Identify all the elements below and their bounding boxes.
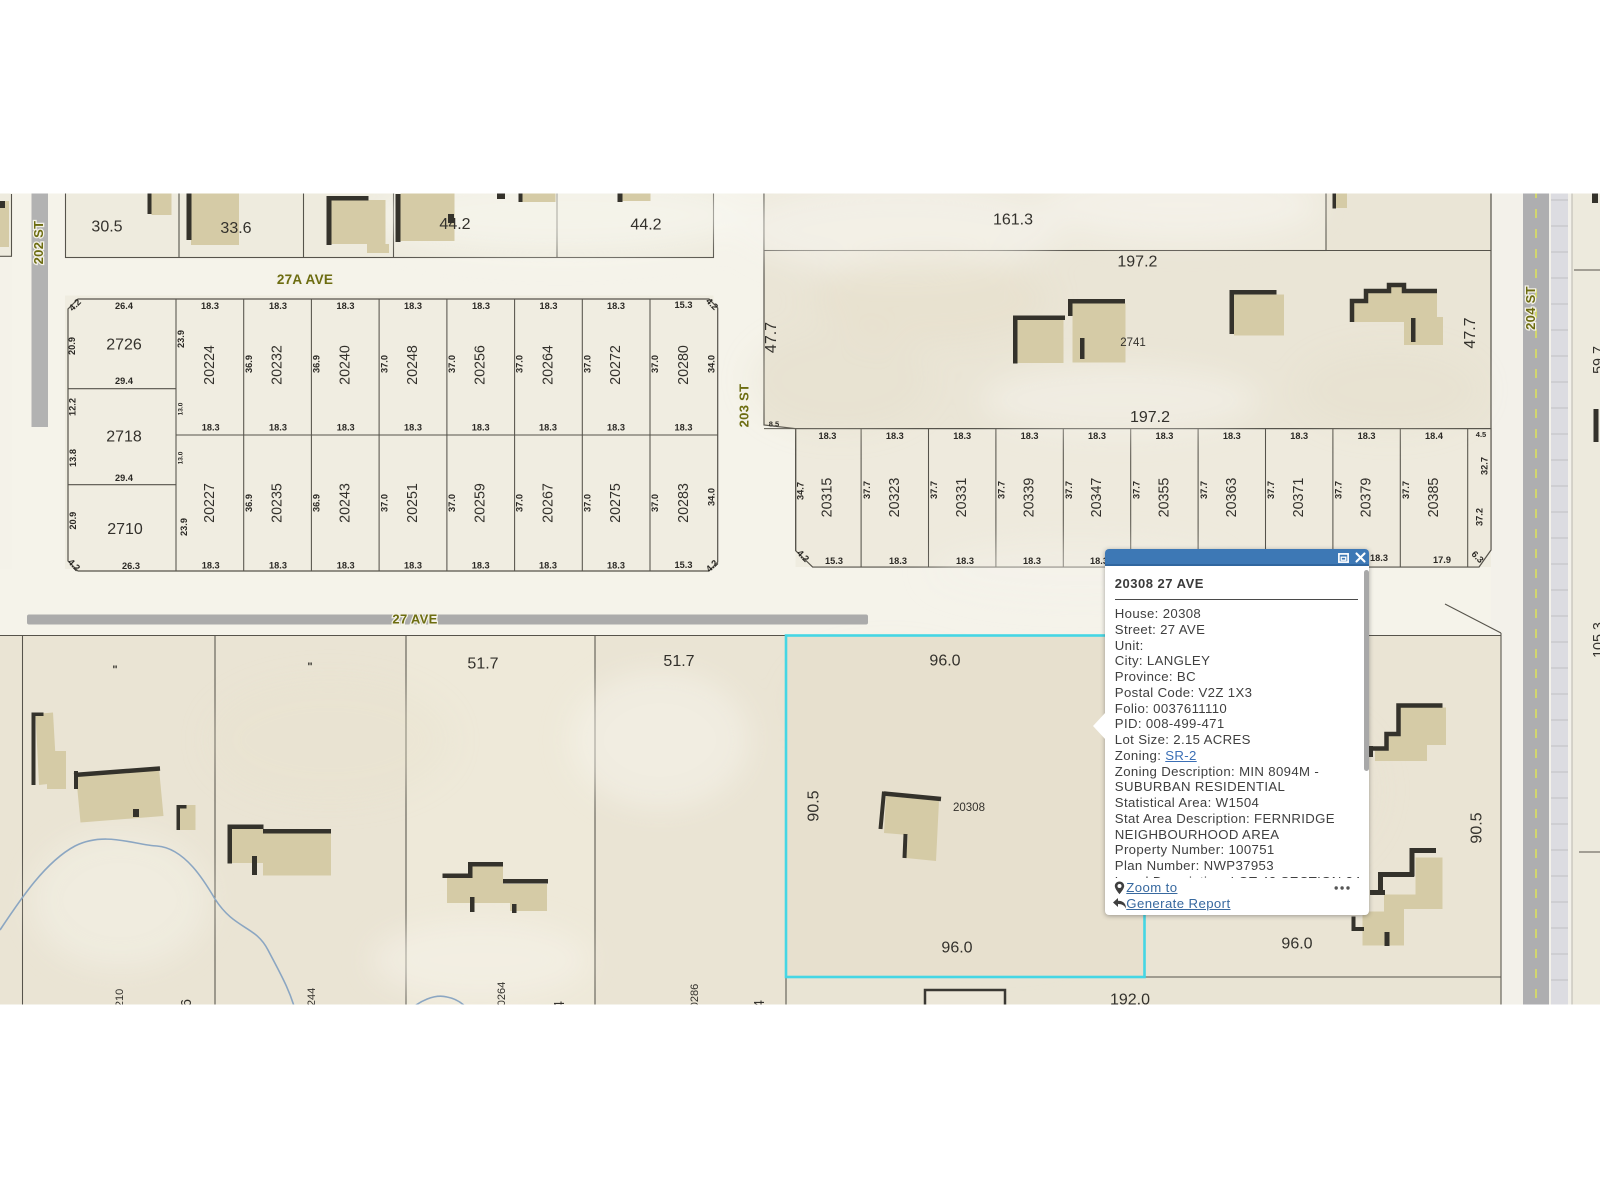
svg-text:20256: 20256 (473, 345, 489, 385)
svg-text:6: 6 (179, 999, 195, 1007)
svg-text:15.3: 15.3 (825, 556, 843, 566)
svg-text:36.9: 36.9 (312, 494, 322, 512)
svg-text:20267: 20267 (540, 483, 556, 523)
svg-text:23.9: 23.9 (176, 330, 186, 348)
svg-text:204 ST: 204 ST (1523, 286, 1538, 330)
svg-text:26.3: 26.3 (122, 561, 140, 571)
svg-text:20235: 20235 (270, 483, 286, 523)
svg-text:20251: 20251 (405, 483, 421, 523)
svg-text:37.7: 37.7 (1131, 481, 1141, 499)
svg-text:18.3: 18.3 (818, 431, 836, 441)
svg-text:18.3: 18.3 (1223, 431, 1241, 441)
svg-text:37.7: 37.7 (1199, 481, 1209, 499)
svg-text:18.3: 18.3 (956, 556, 974, 566)
svg-text:18.3: 18.3 (607, 561, 625, 571)
svg-text:37.7: 37.7 (1266, 481, 1276, 499)
svg-text:4: 4 (752, 1000, 768, 1008)
svg-text:20355: 20355 (1156, 478, 1172, 518)
svg-text:37.7: 37.7 (1334, 481, 1344, 499)
svg-text:18.3: 18.3 (1155, 431, 1173, 441)
svg-text:44.2: 44.2 (630, 217, 661, 234)
svg-text:18.4: 18.4 (1425, 431, 1444, 441)
svg-text:18.3: 18.3 (201, 301, 219, 311)
svg-text:18.3: 18.3 (404, 423, 422, 433)
svg-text:13.8: 13.8 (68, 449, 78, 467)
svg-text:90.5: 90.5 (1469, 812, 1486, 843)
svg-text:44.2: 44.2 (439, 216, 470, 233)
svg-text:13.0: 13.0 (178, 402, 185, 415)
svg-text:18.3: 18.3 (202, 423, 220, 433)
svg-text:20308: 20308 (953, 802, 985, 814)
svg-text:27A AVE: 27A AVE (277, 272, 333, 287)
svg-text:17.9: 17.9 (1433, 555, 1451, 565)
svg-text:18.3: 18.3 (404, 301, 422, 311)
svg-text:36.9: 36.9 (244, 494, 254, 512)
svg-text:20264: 20264 (540, 345, 556, 385)
svg-text:4.5: 4.5 (1476, 430, 1486, 439)
svg-text:37.7: 37.7 (1401, 481, 1411, 499)
svg-text:59.7: 59.7 (1591, 346, 1600, 374)
svg-text:47.7: 47.7 (1462, 317, 1479, 348)
svg-text:20232: 20232 (270, 345, 286, 385)
svg-text:34.0: 34.0 (707, 488, 717, 506)
svg-text:18.3: 18.3 (472, 301, 490, 311)
svg-text:0286: 0286 (689, 984, 701, 1008)
svg-text:37.0: 37.0 (515, 494, 525, 512)
svg-text:20347: 20347 (1089, 478, 1105, 518)
svg-text:37.7: 37.7 (1064, 481, 1074, 499)
svg-text:203 ST: 203 ST (737, 384, 752, 428)
svg-text:18.3: 18.3 (889, 556, 907, 566)
svg-text:51.7: 51.7 (663, 653, 694, 670)
svg-text:20331: 20331 (954, 478, 970, 518)
svg-text:18.3: 18.3 (202, 561, 220, 571)
svg-text:96.0: 96.0 (1281, 936, 1312, 953)
svg-text:37.7: 37.7 (862, 481, 872, 499)
svg-text:37.0: 37.0 (379, 355, 389, 373)
svg-text:37.0: 37.0 (515, 355, 525, 373)
svg-text:2718: 2718 (106, 429, 142, 446)
svg-text:20275: 20275 (608, 483, 624, 523)
svg-text:37.7: 37.7 (929, 481, 939, 499)
svg-text:29.4: 29.4 (115, 473, 134, 483)
svg-text:20.9: 20.9 (68, 512, 78, 530)
svg-text:37.0: 37.0 (650, 355, 660, 373)
svg-text:197.2: 197.2 (1117, 254, 1157, 271)
svg-text:20323: 20323 (887, 478, 903, 518)
svg-text:20371: 20371 (1291, 478, 1307, 518)
svg-text:37.0: 37.0 (582, 494, 592, 512)
svg-text:18.3: 18.3 (269, 561, 287, 571)
svg-text:20363: 20363 (1224, 478, 1240, 518)
svg-text:18.3: 18.3 (337, 423, 355, 433)
svg-text:27 AVE: 27 AVE (392, 612, 437, 627)
svg-text:2726: 2726 (106, 337, 142, 354)
svg-text:20280: 20280 (676, 345, 692, 385)
svg-text:36.9: 36.9 (312, 355, 322, 373)
svg-text:20272: 20272 (608, 345, 624, 385)
svg-text:18.3: 18.3 (404, 561, 422, 571)
svg-text:20315: 20315 (819, 478, 835, 518)
svg-text:2710: 2710 (107, 521, 143, 538)
svg-text:0264: 0264 (496, 982, 508, 1006)
svg-text:161.3: 161.3 (993, 212, 1033, 229)
svg-text:26.4: 26.4 (115, 301, 134, 311)
svg-text:20227: 20227 (202, 483, 218, 523)
svg-text:105.3: 105.3 (1591, 622, 1600, 658)
svg-text:37.2: 37.2 (1475, 508, 1485, 526)
svg-text:20240: 20240 (337, 345, 353, 385)
svg-text:20.9: 20.9 (67, 337, 77, 355)
svg-text:18.3: 18.3 (269, 423, 287, 433)
svg-text:90.5: 90.5 (806, 790, 823, 821)
svg-text:96.0: 96.0 (941, 940, 972, 957)
svg-text:18.3: 18.3 (953, 431, 971, 441)
svg-text:18.3: 18.3 (1023, 556, 1041, 566)
svg-text:18.3: 18.3 (1088, 431, 1106, 441)
svg-text:51.7: 51.7 (467, 656, 498, 673)
svg-text:20283: 20283 (676, 483, 692, 523)
svg-text:18.3: 18.3 (337, 301, 355, 311)
svg-text:18.3: 18.3 (472, 561, 490, 571)
svg-text:37.7: 37.7 (997, 481, 1007, 499)
svg-text:37.0: 37.0 (379, 494, 389, 512)
svg-text:37.0: 37.0 (582, 355, 592, 373)
svg-text:18.3: 18.3 (337, 561, 355, 571)
svg-text:15.3: 15.3 (675, 300, 693, 310)
svg-text:33.6: 33.6 (220, 220, 251, 237)
svg-text:96.0: 96.0 (929, 653, 960, 670)
svg-text:15.3: 15.3 (675, 560, 693, 570)
svg-text:13.0: 13.0 (178, 451, 185, 464)
svg-text:244: 244 (306, 988, 318, 1006)
svg-text:34.7: 34.7 (796, 482, 806, 500)
svg-text:20385: 20385 (1426, 478, 1442, 518)
svg-text:36.9: 36.9 (244, 355, 254, 373)
svg-text:23.9: 23.9 (179, 518, 189, 536)
svg-text:20248: 20248 (405, 345, 421, 385)
svg-text:": " (307, 661, 312, 673)
svg-text:8.5: 8.5 (769, 420, 779, 429)
svg-text:37.0: 37.0 (447, 355, 457, 373)
svg-text:2741: 2741 (1120, 337, 1146, 349)
svg-text:18.3: 18.3 (675, 423, 693, 433)
svg-text:37.0: 37.0 (447, 494, 457, 512)
svg-text:32.7: 32.7 (1480, 457, 1490, 475)
svg-text:47.7: 47.7 (763, 322, 780, 353)
svg-text:18.3: 18.3 (540, 301, 558, 311)
svg-text:210: 210 (114, 989, 126, 1007)
svg-text:18.3: 18.3 (539, 423, 557, 433)
svg-text:197.2: 197.2 (1130, 409, 1170, 426)
svg-text:202 ST: 202 ST (31, 221, 46, 265)
svg-text:18.3: 18.3 (1290, 431, 1308, 441)
svg-text:30.5: 30.5 (91, 219, 122, 236)
svg-text:": " (112, 664, 117, 676)
svg-text:34.0: 34.0 (707, 355, 717, 373)
svg-text:18.3: 18.3 (607, 423, 625, 433)
svg-text:18.3: 18.3 (1021, 431, 1039, 441)
svg-text:18.3: 18.3 (1358, 431, 1376, 441)
svg-text:4: 4 (552, 1001, 568, 1009)
svg-text:20243: 20243 (337, 483, 353, 523)
svg-text:18.3: 18.3 (472, 423, 490, 433)
svg-text:29.4: 29.4 (115, 376, 134, 386)
svg-text:18.3: 18.3 (269, 301, 287, 311)
svg-text:192.0: 192.0 (1110, 992, 1150, 1009)
svg-text:18.3: 18.3 (607, 301, 625, 311)
svg-text:18.3: 18.3 (539, 561, 557, 571)
svg-text:20379: 20379 (1359, 478, 1375, 518)
svg-text:20339: 20339 (1022, 478, 1038, 518)
svg-text:20259: 20259 (473, 483, 489, 523)
svg-text:37.0: 37.0 (650, 494, 660, 512)
svg-text:18.3: 18.3 (886, 431, 904, 441)
svg-text:12.2: 12.2 (68, 398, 78, 416)
svg-text:20224: 20224 (202, 345, 218, 385)
svg-text:18.3: 18.3 (1370, 553, 1388, 563)
